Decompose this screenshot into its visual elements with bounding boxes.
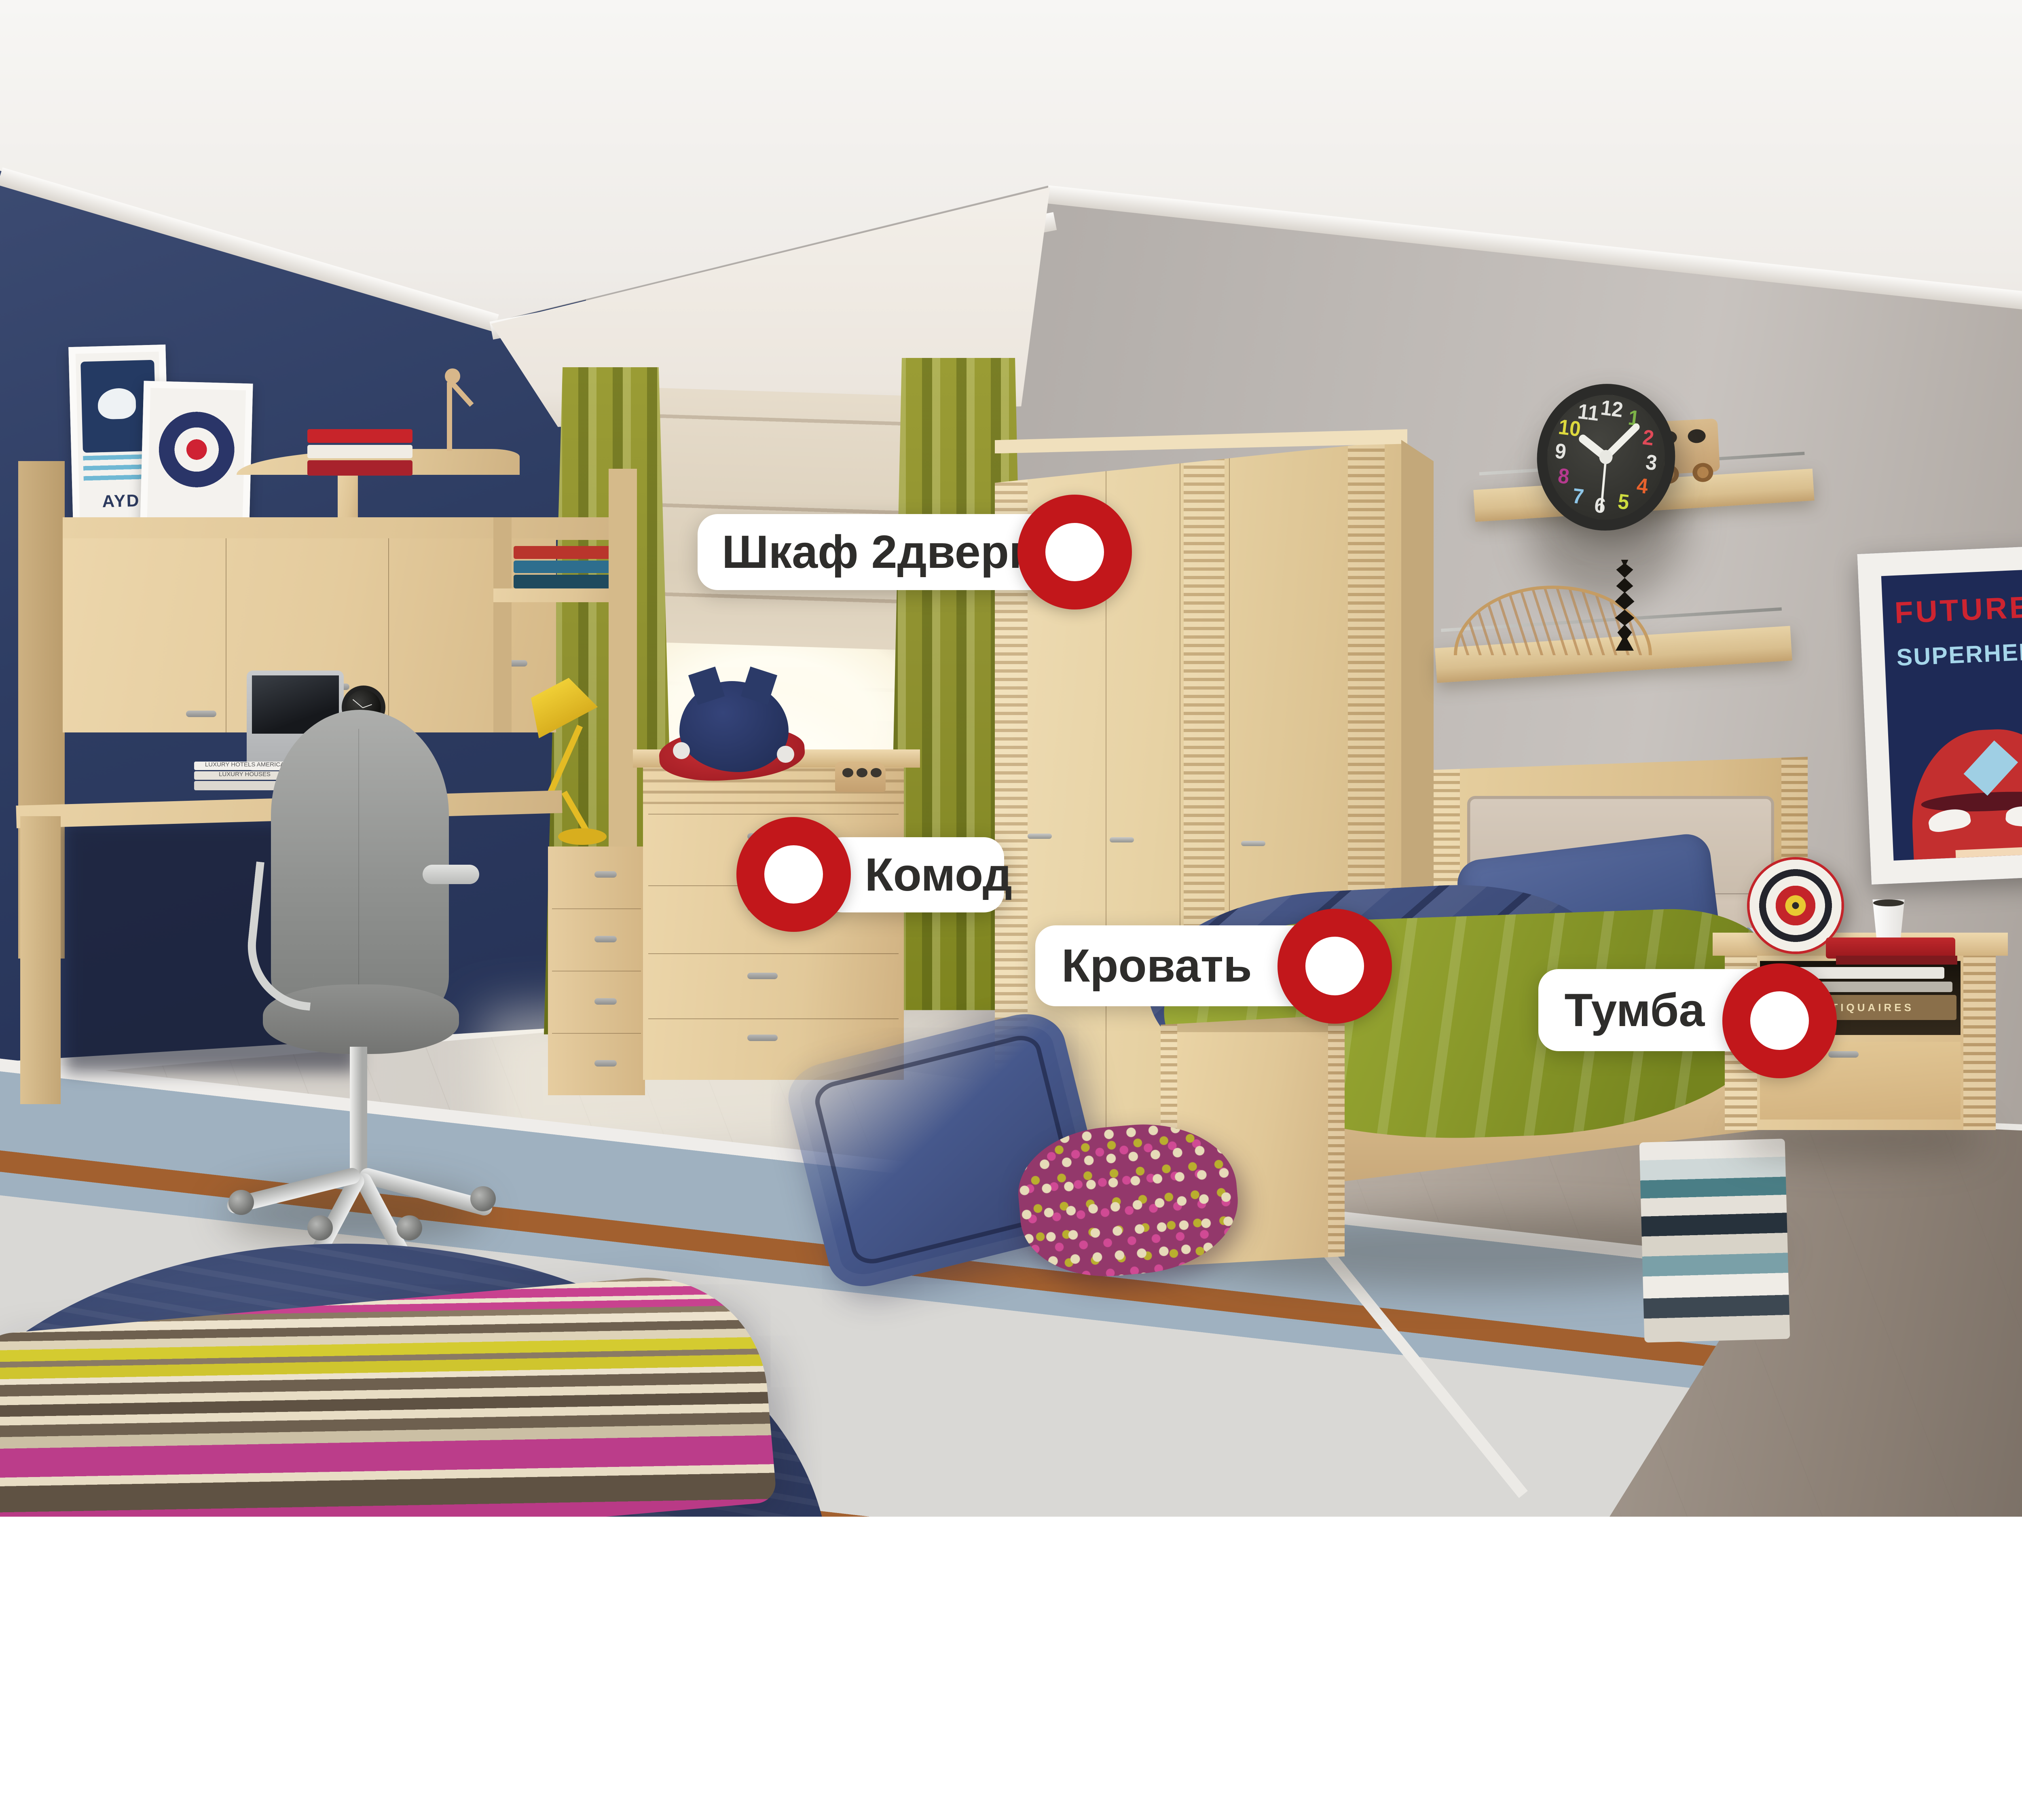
chair-armrest-pad bbox=[423, 865, 479, 885]
chair-caster bbox=[307, 1215, 333, 1241]
drawer-seam bbox=[552, 908, 641, 909]
hotspot-marker-nightstand[interactable] bbox=[1722, 963, 1837, 1078]
drawer-seam bbox=[552, 971, 641, 971]
bus-window bbox=[871, 768, 882, 777]
clock-numeral: 12 bbox=[1599, 395, 1624, 422]
chair-base bbox=[228, 1132, 491, 1223]
clock-numeral: 2 bbox=[1641, 425, 1656, 451]
book bbox=[307, 460, 412, 476]
door-seam bbox=[388, 538, 389, 732]
bus-window bbox=[857, 768, 868, 777]
hotspot-marker-bed[interactable] bbox=[1277, 909, 1392, 1024]
drawer-seam bbox=[648, 1018, 899, 1019]
alarm-hand bbox=[353, 699, 363, 708]
whale-shape bbox=[97, 388, 136, 420]
hero-chin bbox=[1955, 847, 2022, 872]
drawer-handle bbox=[594, 936, 617, 942]
hotspot-label-text: Комод bbox=[865, 848, 1012, 902]
hotspot-marker-wardrobe[interactable] bbox=[1017, 495, 1132, 609]
drawer-handle bbox=[747, 973, 778, 979]
book bbox=[307, 445, 412, 459]
door-handle bbox=[186, 711, 216, 717]
clock-numeral: 9 bbox=[1554, 438, 1568, 464]
drawer-handle bbox=[594, 998, 617, 1005]
drawer-handle bbox=[747, 1035, 778, 1041]
hotspot-label-text: Кровать bbox=[1062, 939, 1252, 993]
hotspot-label-text: Тумба bbox=[1565, 984, 1705, 1037]
clock-numeral: 8 bbox=[1557, 463, 1571, 489]
superhero-poster: FUTURE SUPERHERO bbox=[1857, 544, 2022, 884]
book bbox=[514, 575, 619, 588]
drawer-handle bbox=[594, 871, 617, 878]
wardrobe-handle bbox=[1028, 834, 1052, 839]
toy-car-window bbox=[1688, 429, 1706, 443]
superhero-face bbox=[1908, 707, 2022, 871]
book bbox=[514, 561, 619, 574]
nightstand-ribbed-post bbox=[1963, 954, 1996, 1130]
mannequin-body bbox=[447, 382, 452, 451]
drawer-handle bbox=[1828, 1051, 1859, 1058]
clock-numeral: 7 bbox=[1571, 483, 1585, 509]
hutch-divider bbox=[493, 517, 512, 733]
hotspot-marker-dresser[interactable] bbox=[736, 817, 851, 932]
book bbox=[514, 546, 619, 559]
hutch-side-panel bbox=[609, 469, 637, 848]
hutch-shelf-support bbox=[338, 473, 358, 522]
footboard-ribbed-trim bbox=[1328, 1015, 1345, 1267]
door-seam bbox=[226, 538, 226, 732]
bus-window bbox=[842, 768, 854, 777]
lamp-base bbox=[558, 828, 607, 845]
desk-leg bbox=[20, 816, 61, 1105]
room-showcase: 12 1 2 3 4 5 6 7 8 9 10 11 FUTURE SUPERH… bbox=[0, 0, 2022, 1517]
drawer-handle bbox=[594, 1060, 617, 1067]
book bbox=[307, 429, 412, 443]
clock-numeral: 3 bbox=[1644, 450, 1658, 476]
wardrobe-handle bbox=[1241, 841, 1265, 846]
poster-title-line1: FUTURE bbox=[1894, 589, 2022, 630]
hutch-board bbox=[63, 517, 637, 540]
wardrobe-handle bbox=[1110, 837, 1134, 842]
roundel-target bbox=[157, 411, 236, 489]
desk-drawer-unit bbox=[548, 847, 645, 1095]
cat-paw bbox=[777, 746, 794, 763]
clock-numeral: 5 bbox=[1616, 489, 1631, 514]
chair-caster bbox=[470, 1186, 496, 1212]
chair-caster bbox=[397, 1215, 422, 1241]
drawer-seam bbox=[552, 1033, 641, 1034]
chair-caster bbox=[228, 1190, 254, 1215]
book-stack-floor bbox=[1639, 1139, 1790, 1342]
books-in-cubby bbox=[514, 546, 619, 588]
alarm-hand bbox=[363, 704, 372, 708]
clock-numeral: 11 bbox=[1576, 399, 1600, 426]
poster-title-line2: SUPERHERO bbox=[1896, 637, 2022, 671]
drawer-seam bbox=[648, 814, 899, 815]
clock-numeral: 4 bbox=[1635, 473, 1650, 499]
drawer-seam bbox=[648, 953, 899, 954]
hotspot-label-bed[interactable]: Кровать bbox=[1035, 925, 1314, 1007]
book-stack-shelf bbox=[307, 429, 412, 478]
dark-red-book bbox=[1836, 956, 1957, 965]
toy-bus bbox=[835, 762, 886, 792]
